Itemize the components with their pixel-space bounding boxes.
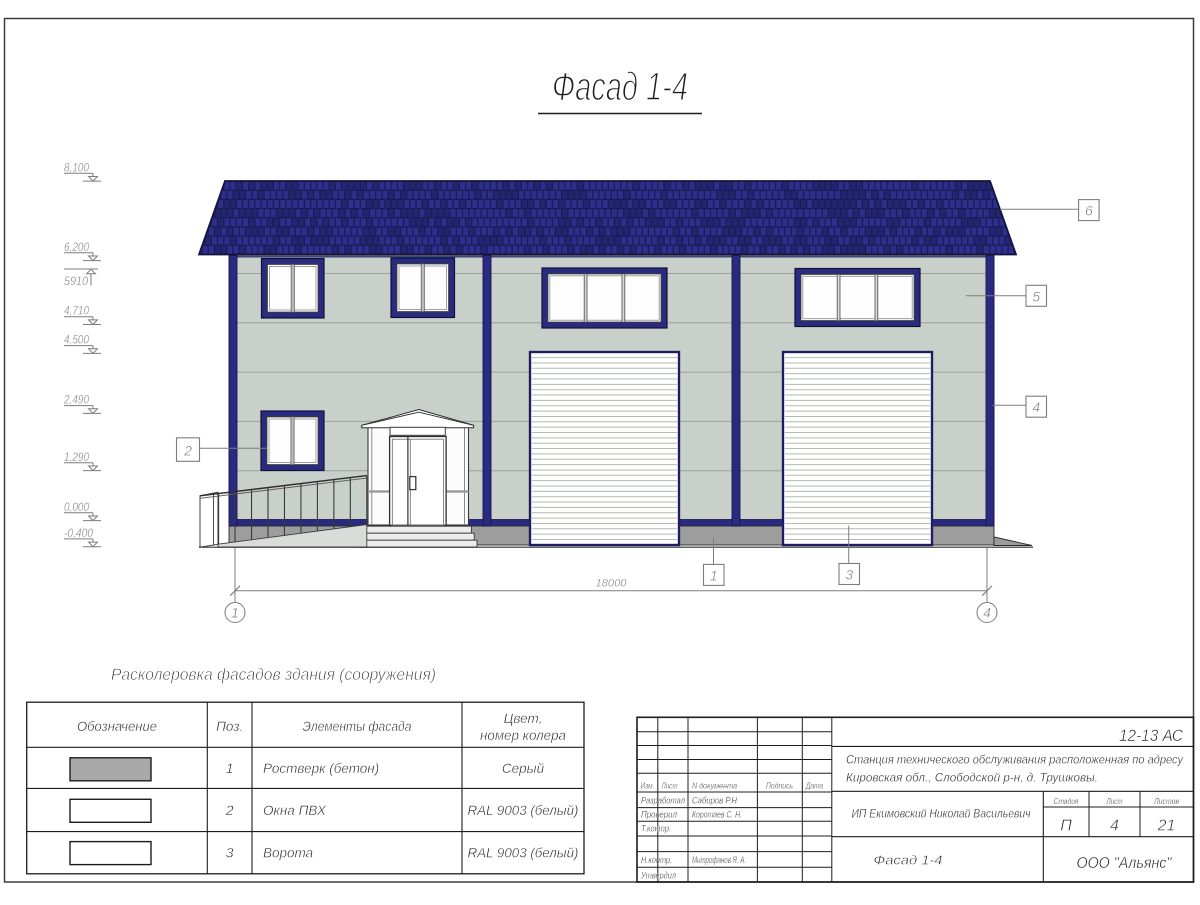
- svg-text:Подпись: Подпись: [766, 782, 793, 791]
- svg-text:5: 5: [1032, 288, 1040, 304]
- svg-text:4,710: 4,710: [64, 304, 89, 318]
- svg-text:Поз.: Поз.: [216, 719, 243, 734]
- svg-text:Окна ПВХ: Окна ПВХ: [263, 803, 327, 818]
- svg-text:4: 4: [1110, 818, 1119, 835]
- svg-text:Листов: Листов: [1153, 796, 1179, 806]
- svg-text:Т.контр.: Т.контр.: [641, 824, 671, 834]
- svg-text:Фасад 1-4: Фасад 1-4: [874, 853, 943, 868]
- svg-text:номер колера: номер колера: [480, 728, 566, 743]
- svg-text:Элементы фасада: Элементы фасада: [303, 719, 412, 734]
- svg-text:Проверил: Проверил: [641, 809, 677, 819]
- svg-text:RAL 9003 (белый): RAL 9003 (белый): [468, 845, 579, 860]
- svg-text:3: 3: [226, 844, 234, 860]
- svg-text:П: П: [1060, 818, 1072, 835]
- svg-text:Расколеровка фасадов здания (с: Расколеровка фасадов здания (сооружения): [111, 665, 436, 684]
- svg-text:ИП Екимовский Николай Васильев: ИП Екимовский Николай Васильевич: [852, 807, 1031, 821]
- svg-text:8,100: 8,100: [64, 160, 89, 174]
- svg-text:-0,400: -0,400: [64, 526, 93, 540]
- svg-text:Изм.: Изм.: [641, 782, 655, 791]
- svg-text:Лист: Лист: [1106, 796, 1123, 806]
- svg-text:RAL 9003 (белый): RAL 9003 (белый): [468, 803, 579, 818]
- svg-text:ООО "Альянс": ООО "Альянс": [1077, 855, 1173, 872]
- svg-text:Н.контр.: Н.контр.: [641, 855, 672, 865]
- svg-text:Кировская обл., Слободской р-н: Кировская обл., Слободской р-н, д. Трушк…: [846, 773, 1098, 785]
- svg-text:Станция технического обслужива: Станция технического обслуживания распол…: [846, 755, 1184, 767]
- svg-text:Серый: Серый: [502, 761, 545, 776]
- svg-text:21: 21: [1157, 818, 1176, 835]
- svg-text:2: 2: [183, 443, 192, 459]
- svg-text:Утвердил: Утвердил: [640, 871, 676, 881]
- svg-text:Цвет,: Цвет,: [504, 711, 543, 726]
- svg-text:6: 6: [1085, 203, 1093, 219]
- svg-text:3: 3: [845, 566, 853, 582]
- svg-text:Лист: Лист: [661, 782, 678, 791]
- svg-text:Стадия: Стадия: [1054, 796, 1079, 806]
- svg-text:1: 1: [226, 760, 234, 776]
- svg-text:1: 1: [231, 605, 239, 621]
- svg-text:5910: 5910: [64, 274, 88, 288]
- svg-text:4,500: 4,500: [64, 333, 89, 347]
- svg-text:12-13 АС: 12-13 АС: [1119, 726, 1184, 745]
- svg-text:Ворота: Ворота: [263, 845, 314, 860]
- svg-text:6,200: 6,200: [64, 240, 89, 254]
- svg-text:Ростверк (бетон): Ростверк (бетон): [263, 761, 379, 776]
- svg-text:18000: 18000: [596, 578, 628, 590]
- svg-text:N документа: N документа: [692, 782, 737, 791]
- svg-text:0,000: 0,000: [64, 500, 89, 514]
- svg-text:Сабиров Р.Н: Сабиров Р.Н: [692, 796, 737, 806]
- svg-text:Фасад 1-4: Фасад 1-4: [552, 65, 688, 109]
- svg-text:Разработал: Разработал: [641, 796, 685, 806]
- svg-text:Коротаев С. Н.: Коротаев С. Н.: [692, 809, 742, 819]
- svg-text:Дата: Дата: [805, 782, 823, 791]
- svg-text:1: 1: [710, 567, 718, 583]
- svg-text:2: 2: [225, 802, 234, 818]
- svg-text:Митрофанов Я. А.: Митрофанов Я. А.: [692, 855, 746, 865]
- svg-text:4: 4: [1032, 399, 1040, 415]
- svg-text:1,290: 1,290: [64, 450, 89, 464]
- svg-text:2,490: 2,490: [63, 393, 89, 407]
- svg-text:4: 4: [983, 605, 991, 621]
- svg-text:Обозначение: Обозначение: [77, 719, 157, 734]
